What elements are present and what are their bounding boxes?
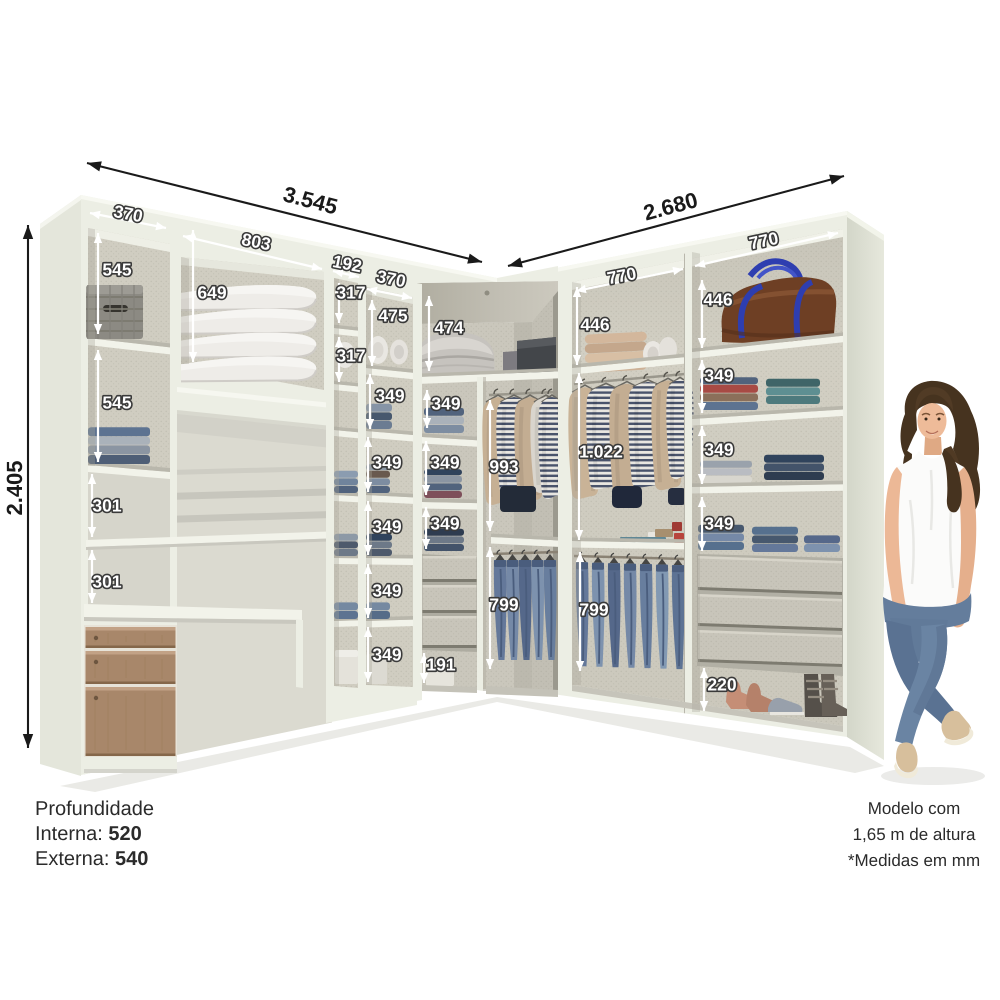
svg-text:317: 317 xyxy=(336,346,365,366)
svg-text:349: 349 xyxy=(375,386,404,406)
svg-text:1,65 m de altura: 1,65 m de altura xyxy=(853,825,976,844)
svg-text:349: 349 xyxy=(372,453,401,473)
svg-text:545: 545 xyxy=(102,260,131,280)
svg-text:799: 799 xyxy=(579,600,608,620)
svg-text:Externa: 540: Externa: 540 xyxy=(35,848,148,870)
svg-text:*Medidas em mm: *Medidas em mm xyxy=(848,851,980,870)
svg-text:349: 349 xyxy=(430,514,459,534)
svg-text:220: 220 xyxy=(707,675,736,695)
svg-text:799: 799 xyxy=(489,595,518,615)
svg-text:545: 545 xyxy=(102,393,131,413)
svg-text:349: 349 xyxy=(430,453,459,473)
svg-text:301: 301 xyxy=(92,496,121,516)
svg-text:446: 446 xyxy=(580,315,609,335)
svg-text:349: 349 xyxy=(372,517,401,537)
svg-text:446: 446 xyxy=(703,290,732,310)
svg-text:475: 475 xyxy=(378,306,407,326)
svg-text:349: 349 xyxy=(431,394,460,414)
svg-text:349: 349 xyxy=(372,645,401,665)
svg-text:349: 349 xyxy=(704,440,733,460)
svg-text:317: 317 xyxy=(336,283,365,303)
svg-text:1.022: 1.022 xyxy=(579,442,623,462)
svg-text:191: 191 xyxy=(426,655,455,675)
svg-text:301: 301 xyxy=(92,572,121,592)
svg-text:649: 649 xyxy=(197,283,226,303)
svg-text:2.405: 2.405 xyxy=(2,460,27,515)
svg-text:349: 349 xyxy=(372,581,401,601)
svg-text:Interna: 520: Interna: 520 xyxy=(35,823,142,845)
svg-text:474: 474 xyxy=(434,318,463,338)
svg-text:993: 993 xyxy=(489,457,518,477)
svg-text:Profundidade: Profundidade xyxy=(35,798,154,820)
svg-text:349: 349 xyxy=(704,366,733,386)
svg-text:349: 349 xyxy=(704,514,733,534)
svg-text:Modelo com: Modelo com xyxy=(868,799,961,818)
